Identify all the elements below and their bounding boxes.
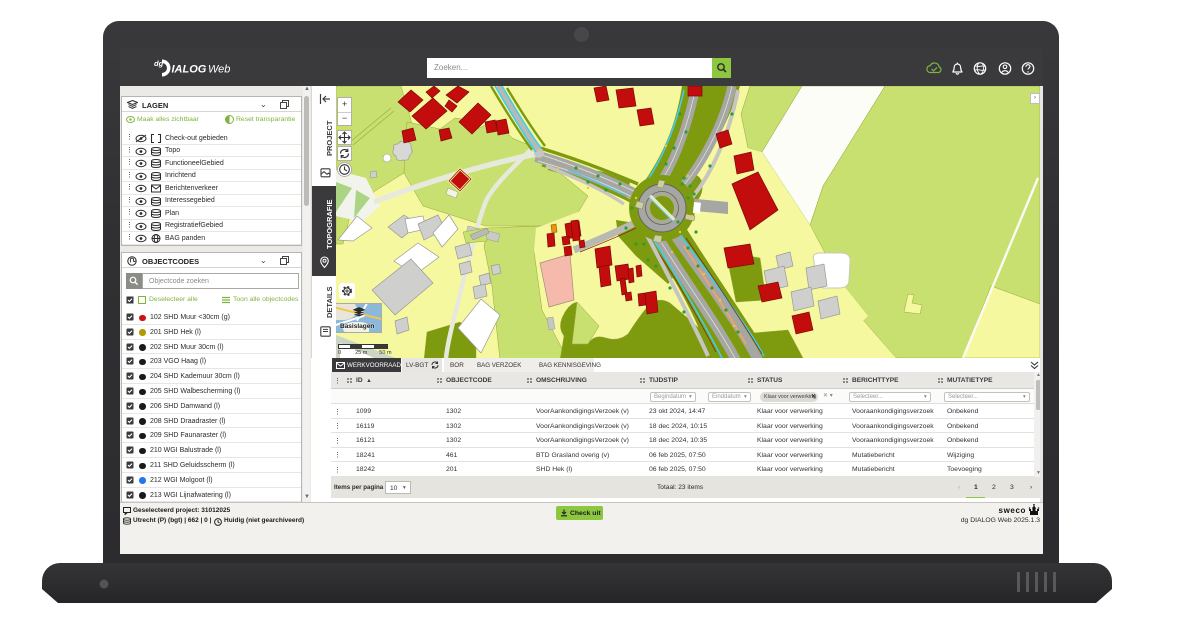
svg-text:Web: Web: [208, 64, 230, 76]
svg-text:IALOG: IALOG: [172, 64, 207, 76]
